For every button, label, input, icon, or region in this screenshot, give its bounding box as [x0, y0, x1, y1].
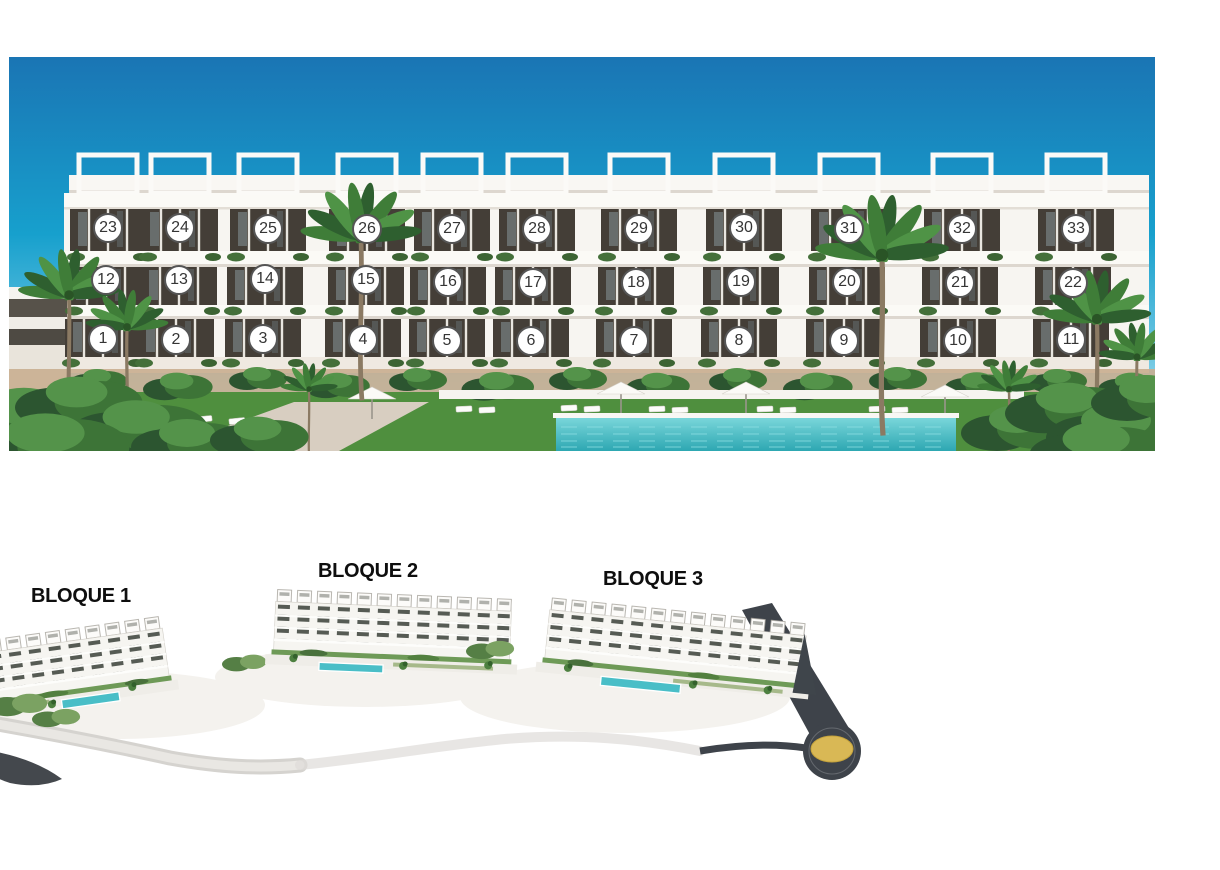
- unit-marker-16[interactable]: 16: [433, 267, 463, 297]
- unit-marker-3[interactable]: 3: [248, 324, 278, 354]
- unit-marker-6[interactable]: 6: [516, 326, 546, 356]
- unit-marker-4[interactable]: 4: [348, 325, 378, 355]
- bloque-2-building: [265, 587, 520, 678]
- block-label-bloque-2: BLOQUE 2: [318, 560, 418, 583]
- unit-marker-18[interactable]: 18: [621, 268, 651, 298]
- unit-marker-30[interactable]: 30: [729, 213, 759, 243]
- unit-marker-14[interactable]: 14: [250, 264, 280, 294]
- unit-marker-1[interactable]: 1: [88, 324, 118, 354]
- unit-marker-25[interactable]: 25: [253, 214, 283, 244]
- unit-marker-17[interactable]: 17: [518, 268, 548, 298]
- unit-marker-27[interactable]: 27: [437, 214, 467, 244]
- unit-marker-9[interactable]: 9: [829, 326, 859, 356]
- unit-marker-12[interactable]: 12: [91, 265, 121, 295]
- unit-marker-22[interactable]: 22: [1058, 268, 1088, 298]
- unit-marker-11[interactable]: 11: [1056, 325, 1086, 355]
- unit-marker-8[interactable]: 8: [724, 326, 754, 356]
- unit-marker-21[interactable]: 21: [945, 268, 975, 298]
- roundabout-center: [811, 736, 853, 762]
- block-label-bloque-1: BLOQUE 1: [31, 585, 131, 608]
- unit-marker-5[interactable]: 5: [432, 326, 462, 356]
- block-label-bloque-3: BLOQUE 3: [603, 568, 703, 591]
- elevation-render: 1234567891011121314151617181920212223242…: [9, 57, 1155, 451]
- unit-marker-32[interactable]: 32: [947, 214, 977, 244]
- unit-marker-28[interactable]: 28: [522, 214, 552, 244]
- site-plan-render: BLOQUE 1 BLOQUE 2 BLOQUE 3: [0, 555, 880, 790]
- unit-marker-2[interactable]: 2: [161, 325, 191, 355]
- unit-marker-15[interactable]: 15: [351, 265, 381, 295]
- unit-marker-24[interactable]: 24: [165, 213, 195, 243]
- unit-marker-26[interactable]: 26: [352, 214, 382, 244]
- unit-marker-13[interactable]: 13: [164, 265, 194, 295]
- unit-marker-29[interactable]: 29: [624, 214, 654, 244]
- unit-marker-31[interactable]: 31: [834, 214, 864, 244]
- unit-marker-10[interactable]: 10: [943, 326, 973, 356]
- unit-marker-19[interactable]: 19: [726, 267, 756, 297]
- unit-marker-7[interactable]: 7: [619, 326, 649, 356]
- unit-marker-23[interactable]: 23: [93, 213, 123, 243]
- site-plan-illustration: [0, 555, 880, 790]
- unit-marker-33[interactable]: 33: [1061, 214, 1091, 244]
- unit-marker-layer: 1234567891011121314151617181920212223242…: [9, 57, 1155, 451]
- unit-marker-20[interactable]: 20: [832, 267, 862, 297]
